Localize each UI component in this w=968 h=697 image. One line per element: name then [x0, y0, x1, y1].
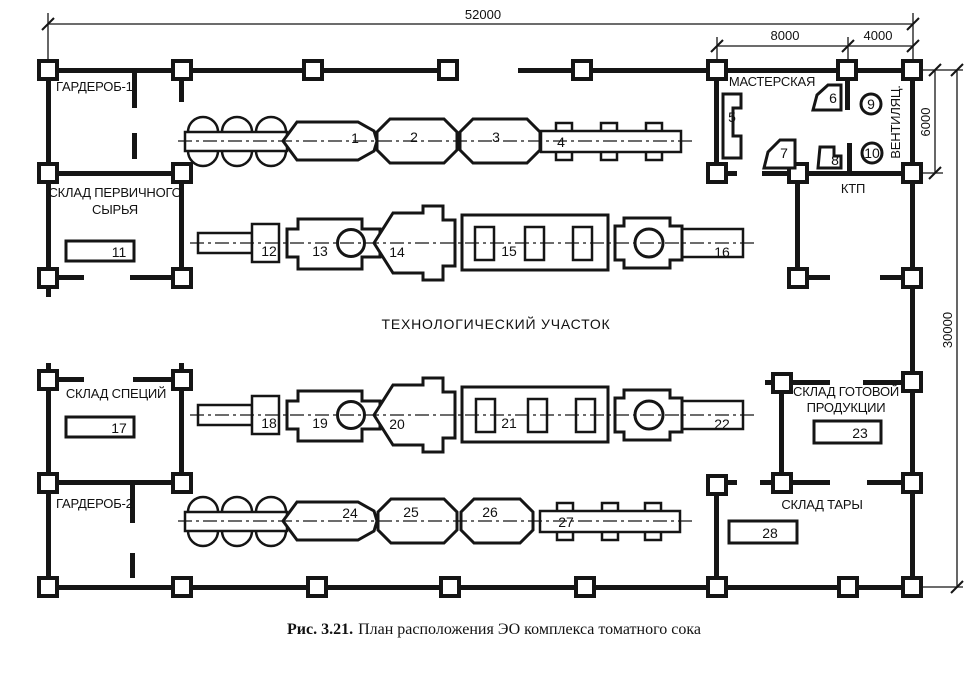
machine-label-20: 20: [389, 416, 405, 432]
machine-label-15: 15: [501, 243, 517, 259]
dimension-workshop-bay: 8000: [771, 28, 800, 43]
floor-plan-drawing: 52000 8000 4000 6000 30000: [0, 0, 968, 697]
machine-label-17: 17: [111, 420, 127, 436]
machine-label-22: 22: [714, 416, 730, 432]
column: [708, 578, 726, 596]
machine-19-pump: [287, 391, 380, 441]
machine-label-28: 28: [762, 525, 778, 541]
column: [839, 578, 857, 596]
machine-label-24: 24: [342, 505, 358, 521]
machine-5: [723, 94, 741, 158]
room-label-ventilyatsionnaya: ВЕНТИЛЯЦ.: [888, 85, 903, 158]
dimension-total-width: 52000: [465, 7, 501, 22]
machine-label-1: 1: [351, 130, 359, 146]
column: [173, 61, 191, 79]
machine-label-4: 4: [557, 134, 565, 150]
column: [39, 61, 57, 79]
machine-label-11: 11: [112, 244, 127, 260]
machine-label-8: 8: [831, 152, 839, 168]
figure-caption-text: План расположения ЭО комплекса томатного…: [358, 621, 701, 638]
room-label-garderob-2: ГАРДЕРОБ-2: [56, 496, 133, 511]
dimension-ventilation-bay: 4000: [864, 28, 893, 43]
column: [903, 474, 921, 492]
machine-13-pump: [287, 219, 380, 269]
area-label-tekhnologicheskij-uchastok: ТЕХНОЛОГИЧЕСКИЙ УЧАСТОК: [381, 315, 610, 332]
room-label-sklad-gotovoj-line2: ПРОДУКЦИИ: [807, 400, 886, 415]
machine-23-box: [814, 421, 881, 443]
dimension-total-depth: 30000: [940, 312, 955, 348]
column: [441, 578, 459, 596]
room-label-sklad-tary: СКЛАД ТАРЫ: [781, 497, 862, 512]
room-label-sklad-gotovoj-line1: СКЛАД ГОТОВОЙ: [793, 384, 899, 399]
column: [173, 269, 191, 287]
column: [708, 476, 726, 494]
column: [773, 474, 791, 492]
column: [903, 269, 921, 287]
machine-label-14: 14: [389, 244, 405, 260]
column: [173, 164, 191, 182]
room-label-garderob-1: ГАРДЕРОБ-1: [56, 79, 133, 94]
machine-label-27: 27: [558, 514, 574, 530]
dimension-service-bay-depth: 6000: [918, 108, 933, 137]
machine-label-23: 23: [852, 425, 868, 441]
column: [308, 578, 326, 596]
column: [39, 164, 57, 182]
machine-label-13: 13: [312, 243, 328, 259]
column: [838, 61, 856, 79]
column: [773, 374, 791, 392]
column: [573, 61, 591, 79]
column: [903, 373, 921, 391]
column: [903, 578, 921, 596]
column: [39, 371, 57, 389]
column: [39, 269, 57, 287]
floor-plan-page: 52000 8000 4000 6000 30000: [0, 0, 968, 697]
machine-label-12: 12: [261, 243, 277, 259]
machine-label-9: 9: [867, 96, 875, 112]
column: [304, 61, 322, 79]
figure-caption: Рис. 3.21.План расположения ЭО комплекса…: [287, 621, 701, 638]
column: [173, 474, 191, 492]
machine-label-2: 2: [410, 129, 418, 145]
column: [39, 578, 57, 596]
figure-caption-number: Рис. 3.21.: [287, 621, 353, 638]
machine-label-10: 10: [864, 145, 880, 161]
column: [903, 61, 921, 79]
machine-label-21: 21: [501, 415, 517, 431]
machine-label-18: 18: [261, 415, 277, 431]
column: [439, 61, 457, 79]
machine-label-6: 6: [829, 90, 837, 106]
machine-label-16: 16: [714, 244, 730, 260]
column: [708, 164, 726, 182]
machine-label-25: 25: [403, 504, 419, 520]
column: [173, 371, 191, 389]
column: [39, 474, 57, 492]
machine-label-26: 26: [482, 504, 498, 520]
machine-label-19: 19: [312, 415, 328, 431]
room-label-sklad-spetsij: СКЛАД СПЕЦИЙ: [66, 386, 166, 401]
column: [173, 578, 191, 596]
column: [903, 164, 921, 182]
room-label-masterskaya: МАСТЕРСКАЯ: [729, 74, 815, 89]
room-label-sklad-pervichnogo-line1: СКЛАД ПЕРВИЧНОГО: [48, 185, 181, 200]
room-label-sklad-pervichnogo-line2: СЫРЬЯ: [92, 202, 138, 217]
machine-label-3: 3: [492, 129, 500, 145]
room-label-ktp: КТП: [841, 181, 865, 196]
machine-label-7: 7: [780, 145, 788, 161]
column: [576, 578, 594, 596]
column: [708, 61, 726, 79]
column: [789, 269, 807, 287]
machine-label-5: 5: [728, 109, 736, 125]
